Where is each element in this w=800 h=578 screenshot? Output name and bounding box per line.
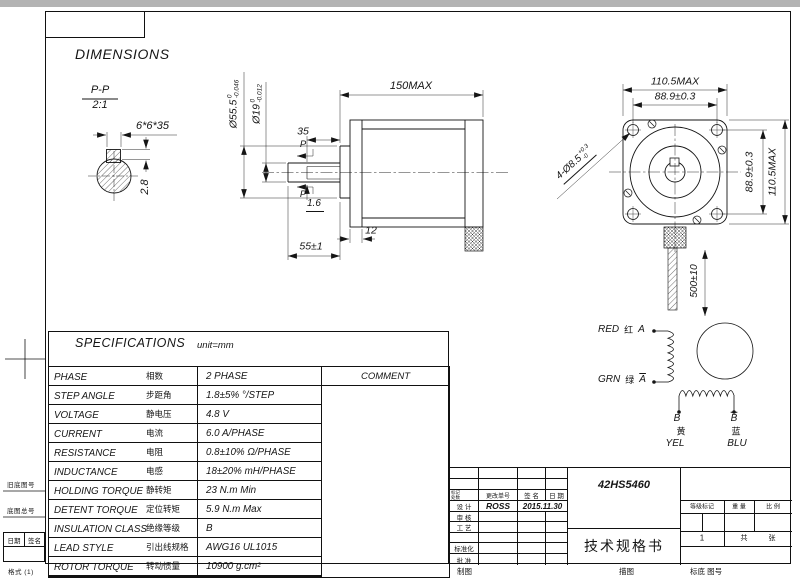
title-block: 标记处数 更改单号 签 名 日 期 设 计 ROSS 2015.11.30 审 … [449,467,791,564]
footer-label-drafter: 制图 [457,566,472,577]
frame-height-dim: 110.5MAX [767,148,778,196]
format-label: 格式 (1) [8,566,34,576]
phase-b-bar-label: B [731,414,738,425]
blue-label: BLU [727,439,746,450]
comment-header: COMMENT [322,367,450,386]
title-block-name-area: 42HS5460 技术规格书 [568,468,681,565]
hole-pitch-v-dim: 88.9±0.3 [744,152,755,193]
key-length-dim: 35 [297,126,309,137]
sheet-number: 1 [700,534,704,543]
shaft-length-dim: 55±1 [299,241,322,252]
frame-width-dim: 110.5MAX [651,76,699,87]
front-view-drawing [609,120,741,310]
section-label: P-P [91,85,109,97]
key-depth-dim: 1.6 [306,199,324,212]
title-block-grade-area: 等级标记 重 量 比 例 1 共 张 [681,468,792,565]
total-length-dim: 150MAX [390,81,432,93]
blue-cn-label: 蓝 [731,427,740,436]
footer-label-tracer: 描图 [619,566,634,577]
yellow-label: YEL [666,439,685,450]
specifications-table: PHASE相数 2 PHASE COMMENT STEP ANGLE步距角 1.… [48,366,450,578]
side-view-dims [240,72,483,260]
engineering-drawing-sheet: { "frame": { "model": "42HS5460", "doc_t… [0,0,800,574]
specifications-title: SPECIFICATIONS [75,337,185,350]
key-height-dim: 2.8 [140,179,152,194]
title-block-revision-area: 标记处数 更改单号 签 名 日 期 设 计 ROSS 2015.11.30 审 … [450,468,568,565]
shaft-diameter-dim: Ø19 0-0.012 [250,84,265,124]
dimensions-title: DIMENSIONS [75,47,170,62]
design-date: 2015.11.30 [518,501,568,511]
hole-pitch-h-dim: 88.9±0.3 [655,91,696,102]
unit-note: unit=mm [197,341,234,351]
pilot-diameter-dim: Ø55.5 0-0.046 [227,80,242,129]
model-number: 42HS5460 [598,479,650,491]
footer-label-drawing-no: 标底 图号 [690,566,722,577]
section-mark-top: P [300,140,306,150]
phase-a-label: RED红A [598,325,645,336]
designer-name: ROSS [479,501,518,511]
key-size-dim: 6*6*35 [136,121,169,133]
old-drawing-no-label: 旧底图号 [7,479,35,489]
wiring-diagram-lines [653,323,753,413]
base-drawing-no-label: 底图总号 [7,505,35,515]
pp-detail-drawing [82,99,131,193]
section-scale: 2:1 [92,100,107,112]
lead-length-dim: 500±10 [690,264,701,297]
flange-thickness-dim: 12 [365,225,377,236]
phase-b-label: B [674,414,681,425]
table-row: PHASE相数 2 PHASE COMMENT [49,367,450,386]
document-title: 技术规格书 [584,536,664,556]
comment-cell [322,386,450,578]
date-sign-box: 日期 签名 [3,532,45,562]
sheet-marks [3,339,45,517]
yellow-cn-label: 黄 [676,427,685,436]
phase-a-bar-label: GRN绿A [598,375,646,386]
table-row: STEP ANGLE步距角 1.8±5% °/STEP [49,386,450,405]
